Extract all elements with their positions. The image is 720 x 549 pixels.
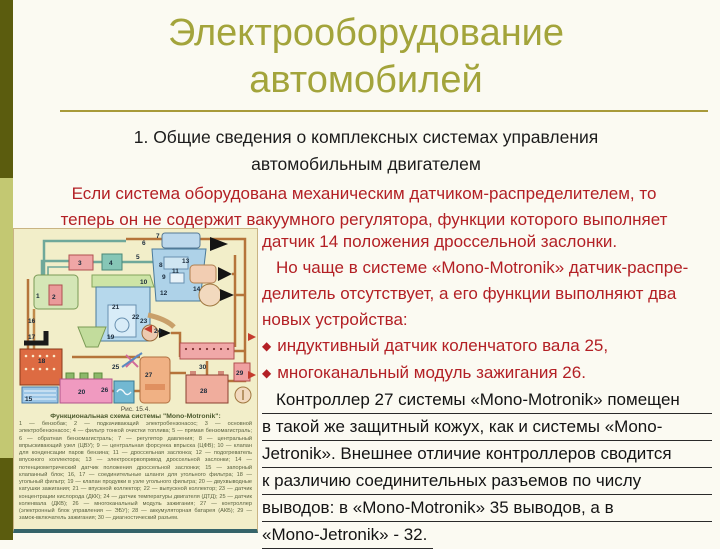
svg-text:1: 1 [36,293,40,300]
bullet-item-1: ◆индуктивный датчик коленчатого вала 25, [262,333,712,360]
svg-text:26: 26 [101,387,109,394]
svg-text:10: 10 [140,279,148,286]
svg-text:15: 15 [25,396,33,403]
bullet-diamond-icon: ◆ [262,366,271,380]
underlined-line2: в такой же защитный кожух, как и системы… [262,414,712,441]
body-text-column: датчик 14 положения дроссельной заслонки… [262,229,712,549]
sensor-connector-cone [220,289,234,301]
svg-text:3: 3 [78,260,82,267]
subtitle-line2: автомобильным двигателем [20,151,712,178]
controller [140,357,170,403]
slide-title-line2: автомобилей [20,57,712,104]
carbon-canister [20,349,62,385]
air-cleaner [162,233,200,248]
servo-connector-cone [218,267,232,281]
figure-mono-motronik: 1 2 3 4 5 6 7 8 9 10 11 12 13 14 15 16 1… [13,228,258,533]
mono-motronik-diagram: 1 2 3 4 5 6 7 8 9 10 11 12 13 14 15 16 1… [14,229,257,405]
red-line3: делитель отсутствует, а его функции выпо… [262,281,712,307]
svg-text:24: 24 [154,328,162,335]
slide-subtitle: 1. Общие сведения о комплексных системах… [20,124,712,178]
svg-text:7: 7 [156,233,160,240]
controller-slot [145,384,165,390]
figure-number: Рис. 15.4. [14,406,257,413]
underlined-line5: выводов: в «Mono-Motronik» 35 выводов, а… [262,495,712,522]
bullet-item-2-text: многоканальный модуль зажигания 26. [277,363,586,382]
pointer-arrow-2 [248,371,256,379]
red-line2: Но чаще в системе «Mono-Motronik» датчик… [262,255,712,281]
svg-text:16: 16 [28,318,36,325]
throttle-position-sensor [199,284,221,306]
svg-text:6: 6 [142,240,146,247]
throttle-servo [190,265,216,283]
underlined-line3: Jetronik». Внешнее отличие контроллеров … [262,441,712,468]
underlined-line6: «Mono-Jetronik» - 32. [262,522,433,549]
svg-text:28: 28 [200,388,208,395]
underlined-paragraph: Контроллер 27 системы «Mono-Motronik» по… [262,387,712,549]
svg-text:12: 12 [160,290,168,297]
left-accent-bar-top [0,0,13,178]
svg-text:27: 27 [145,372,153,379]
intro-paragraph: Если система оборудована механическим да… [16,181,712,233]
svg-text:23: 23 [140,318,148,325]
figure-title: Функциональная схема системы "Mono-Motro… [14,413,257,420]
underlined-line1: Контроллер 27 системы «Mono-Motronik» по… [262,387,712,414]
left-accent-bar-bottom [0,458,13,540]
svg-text:2: 2 [52,294,56,301]
slide-title-line1: Электрооборудование [20,10,712,57]
svg-text:8: 8 [159,262,163,269]
purge-valve [78,327,106,347]
left-accent-bar-middle [0,178,13,458]
crank-sensor-lead [122,353,142,367]
figure-legend: 1 — бензобак; 2 — подкачивающий электроб… [14,420,257,523]
svg-text:9: 9 [162,274,166,281]
svg-text:5: 5 [136,254,140,261]
svg-text:29: 29 [236,370,244,377]
svg-text:19: 19 [107,334,115,341]
svg-text:30: 30 [199,364,207,371]
svg-text:25: 25 [112,364,120,371]
red-line4: новых устройства: [262,307,712,333]
svg-text:4: 4 [109,260,113,267]
bullet-item-1-text: индуктивный датчик коленчатого вала 25, [277,336,608,355]
title-divider-rule [60,110,708,112]
svg-text:17: 17 [28,334,36,341]
bullet-diamond-icon: ◆ [262,339,271,353]
slide-title: Электрооборудование автомобилей [20,10,712,104]
svg-text:22: 22 [132,314,140,321]
underlined-line4: к различию соединительных разъемов по чи… [262,468,712,495]
bullet-item-2: ◆многоканальный модуль зажигания 26. [262,360,712,387]
red-line1: датчик 14 положения дроссельной заслонки… [262,229,712,255]
svg-text:21: 21 [112,304,120,311]
svg-text:11: 11 [172,268,179,275]
svg-text:14: 14 [193,286,201,293]
diagnostic-connector [180,343,234,359]
svg-text:13: 13 [182,258,190,265]
intro-line1: Если система оборудована механическим да… [16,181,712,207]
svg-text:20: 20 [78,389,86,396]
subtitle-line1: 1. Общие сведения о комплексных системах… [20,124,712,151]
pointer-arrow-1 [248,333,256,341]
svg-text:18: 18 [38,358,46,365]
